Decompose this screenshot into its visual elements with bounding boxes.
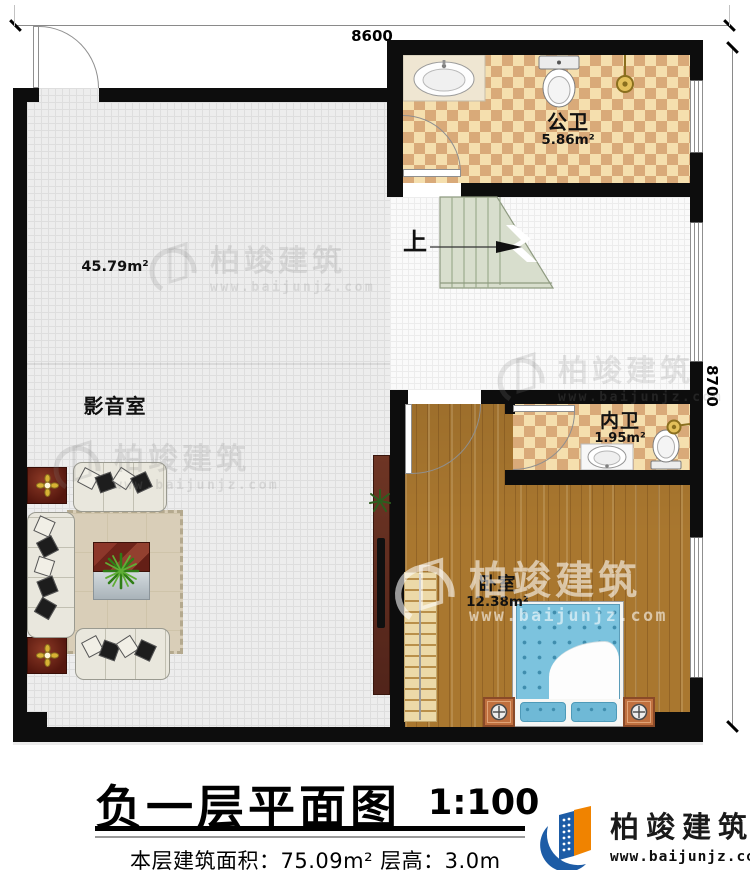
company-website: www.baijunjz.com <box>610 849 750 865</box>
tv <box>377 538 385 628</box>
ladder-rail <box>419 574 421 720</box>
dimension-extension-line <box>729 5 730 26</box>
bedroom-door-leaf <box>405 404 412 474</box>
room-name: 卧室 <box>455 575 540 595</box>
window-hall <box>690 222 703 362</box>
stairs-up-label: 上 <box>400 229 430 256</box>
entry-door-swing-arc <box>39 26 99 88</box>
wall-public-bath-left <box>387 40 403 197</box>
plant-icon <box>368 488 392 514</box>
room-area-media: 45.79m² <box>75 259 155 275</box>
room-name: 内卫 <box>586 411 654 432</box>
knob-icon <box>490 703 508 721</box>
company-logo-text: 柏竣建筑 www.baijunjz.com <box>610 804 750 865</box>
bed-pillow <box>571 702 617 722</box>
wall-top-entry-stub <box>13 88 39 102</box>
company-name: 柏竣建筑 <box>610 804 750 846</box>
title-rule-thin <box>95 836 525 838</box>
plant-icon <box>101 551 141 591</box>
wall-bedroom-top <box>481 390 690 404</box>
media-room-floor-joint <box>27 363 390 365</box>
window-public-bath <box>690 80 703 153</box>
wall-right-segment <box>690 153 703 222</box>
room-label-public-bath: 公卫 5.86m² <box>508 111 628 149</box>
staircase-graphic <box>430 195 560 295</box>
title-rule-thick <box>95 826 525 831</box>
wall-bottom-right-pier <box>655 712 703 728</box>
dimension-line-top <box>15 25 730 26</box>
wall-inner-bath-bottom <box>505 470 703 485</box>
nightstand-inner <box>627 701 651 723</box>
wall-right-segment <box>690 40 703 80</box>
bed-pillow <box>520 702 566 722</box>
nightstand <box>623 697 655 727</box>
floor-stats: 本层建筑面积：75.09m² 层高：3.0m <box>130 845 501 875</box>
drawing-scale: 1:100 <box>428 783 539 823</box>
room-area: 1.95m² <box>586 432 654 447</box>
wall-public-bath-bottom-stub <box>387 183 403 197</box>
company-logo: 柏竣建筑 www.baijunjz.com <box>540 798 750 870</box>
table-lamp-icon <box>36 644 59 667</box>
room-name: 公卫 <box>508 111 628 133</box>
room-area: 12.38m² <box>455 595 540 610</box>
dimension-label-right: 8700 <box>703 356 721 416</box>
wall-shadow <box>13 742 703 745</box>
dimension-line-right <box>732 47 733 727</box>
window-bedroom <box>690 537 703 678</box>
table-lamp-icon <box>36 474 59 497</box>
wall-public-bath-top <box>387 40 703 55</box>
wall-left <box>13 88 27 742</box>
room-label-bedroom: 卧室 12.38m² <box>455 575 540 610</box>
room-label-inner-bath: 内卫 1.95m² <box>586 411 654 447</box>
knob-icon <box>630 703 648 721</box>
floor-plan-canvas: 8600 8700 <box>0 0 750 879</box>
wall-bottom <box>13 727 703 742</box>
nightstand <box>483 697 515 727</box>
company-logo-icon <box>540 798 602 870</box>
room-area: 5.86m² <box>508 133 628 148</box>
wall-right-segment <box>690 362 703 537</box>
dimension-extension-line <box>14 5 15 26</box>
wall-top-media-room <box>99 88 390 102</box>
wall-bedroom-left <box>390 390 405 742</box>
wall-bottom-left-pier <box>13 712 47 728</box>
nightstand-inner <box>487 701 511 723</box>
room-label-media: 影音室 <box>70 395 160 417</box>
